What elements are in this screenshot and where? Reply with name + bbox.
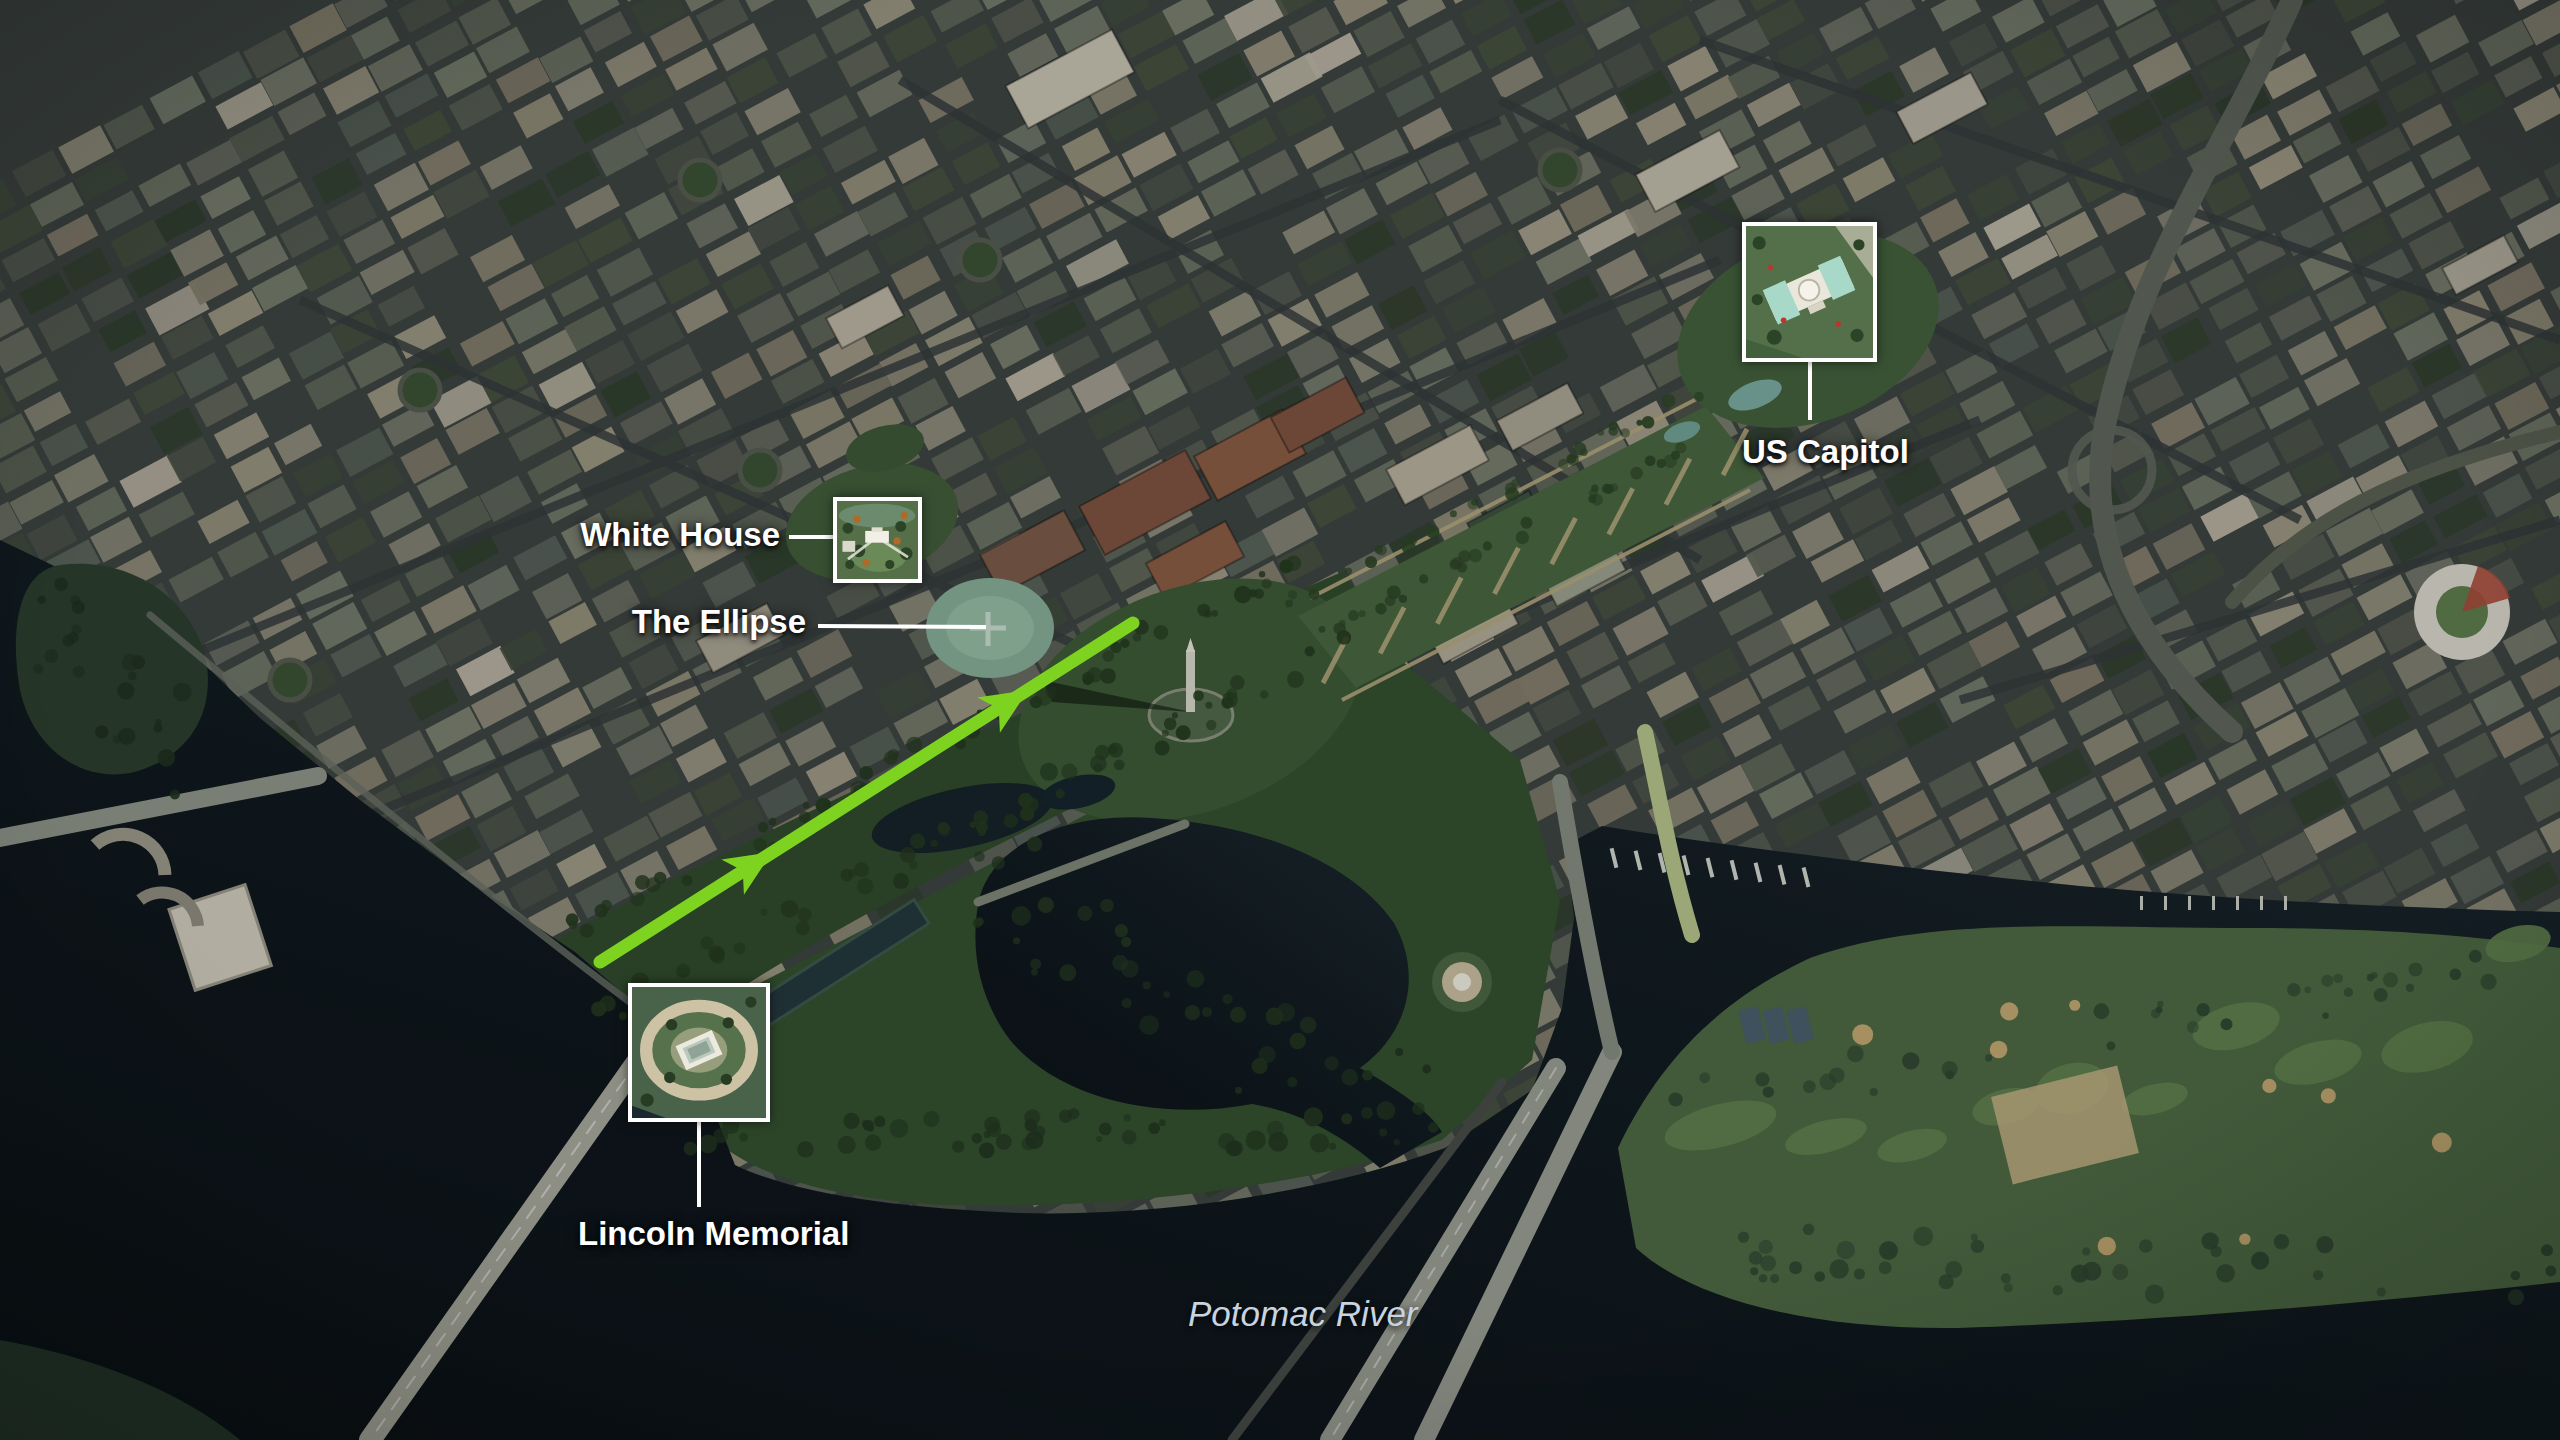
annotated-satellite-graphic: White House The Ellipse US Capitol Linco… bbox=[0, 0, 2560, 1440]
vignette bbox=[0, 0, 2560, 1440]
white-house-aerial-icon bbox=[837, 501, 918, 579]
us-capitol-aerial-icon bbox=[1746, 226, 1873, 358]
lincoln-memorial-marker-box bbox=[628, 983, 770, 1122]
label-us-capitol: US Capitol bbox=[1742, 434, 1909, 470]
label-white-house: White House bbox=[580, 517, 780, 553]
white-house-marker-box bbox=[833, 497, 922, 583]
label-the-ellipse: The Ellipse bbox=[632, 604, 806, 640]
us-capitol-marker-box bbox=[1742, 222, 1877, 362]
label-lincoln-memorial: Lincoln Memorial bbox=[578, 1216, 849, 1252]
label-potomac-river: Potomac River bbox=[1188, 1294, 1418, 1334]
satellite-map bbox=[0, 0, 2560, 1440]
lincoln-memorial-aerial-icon bbox=[632, 987, 766, 1118]
